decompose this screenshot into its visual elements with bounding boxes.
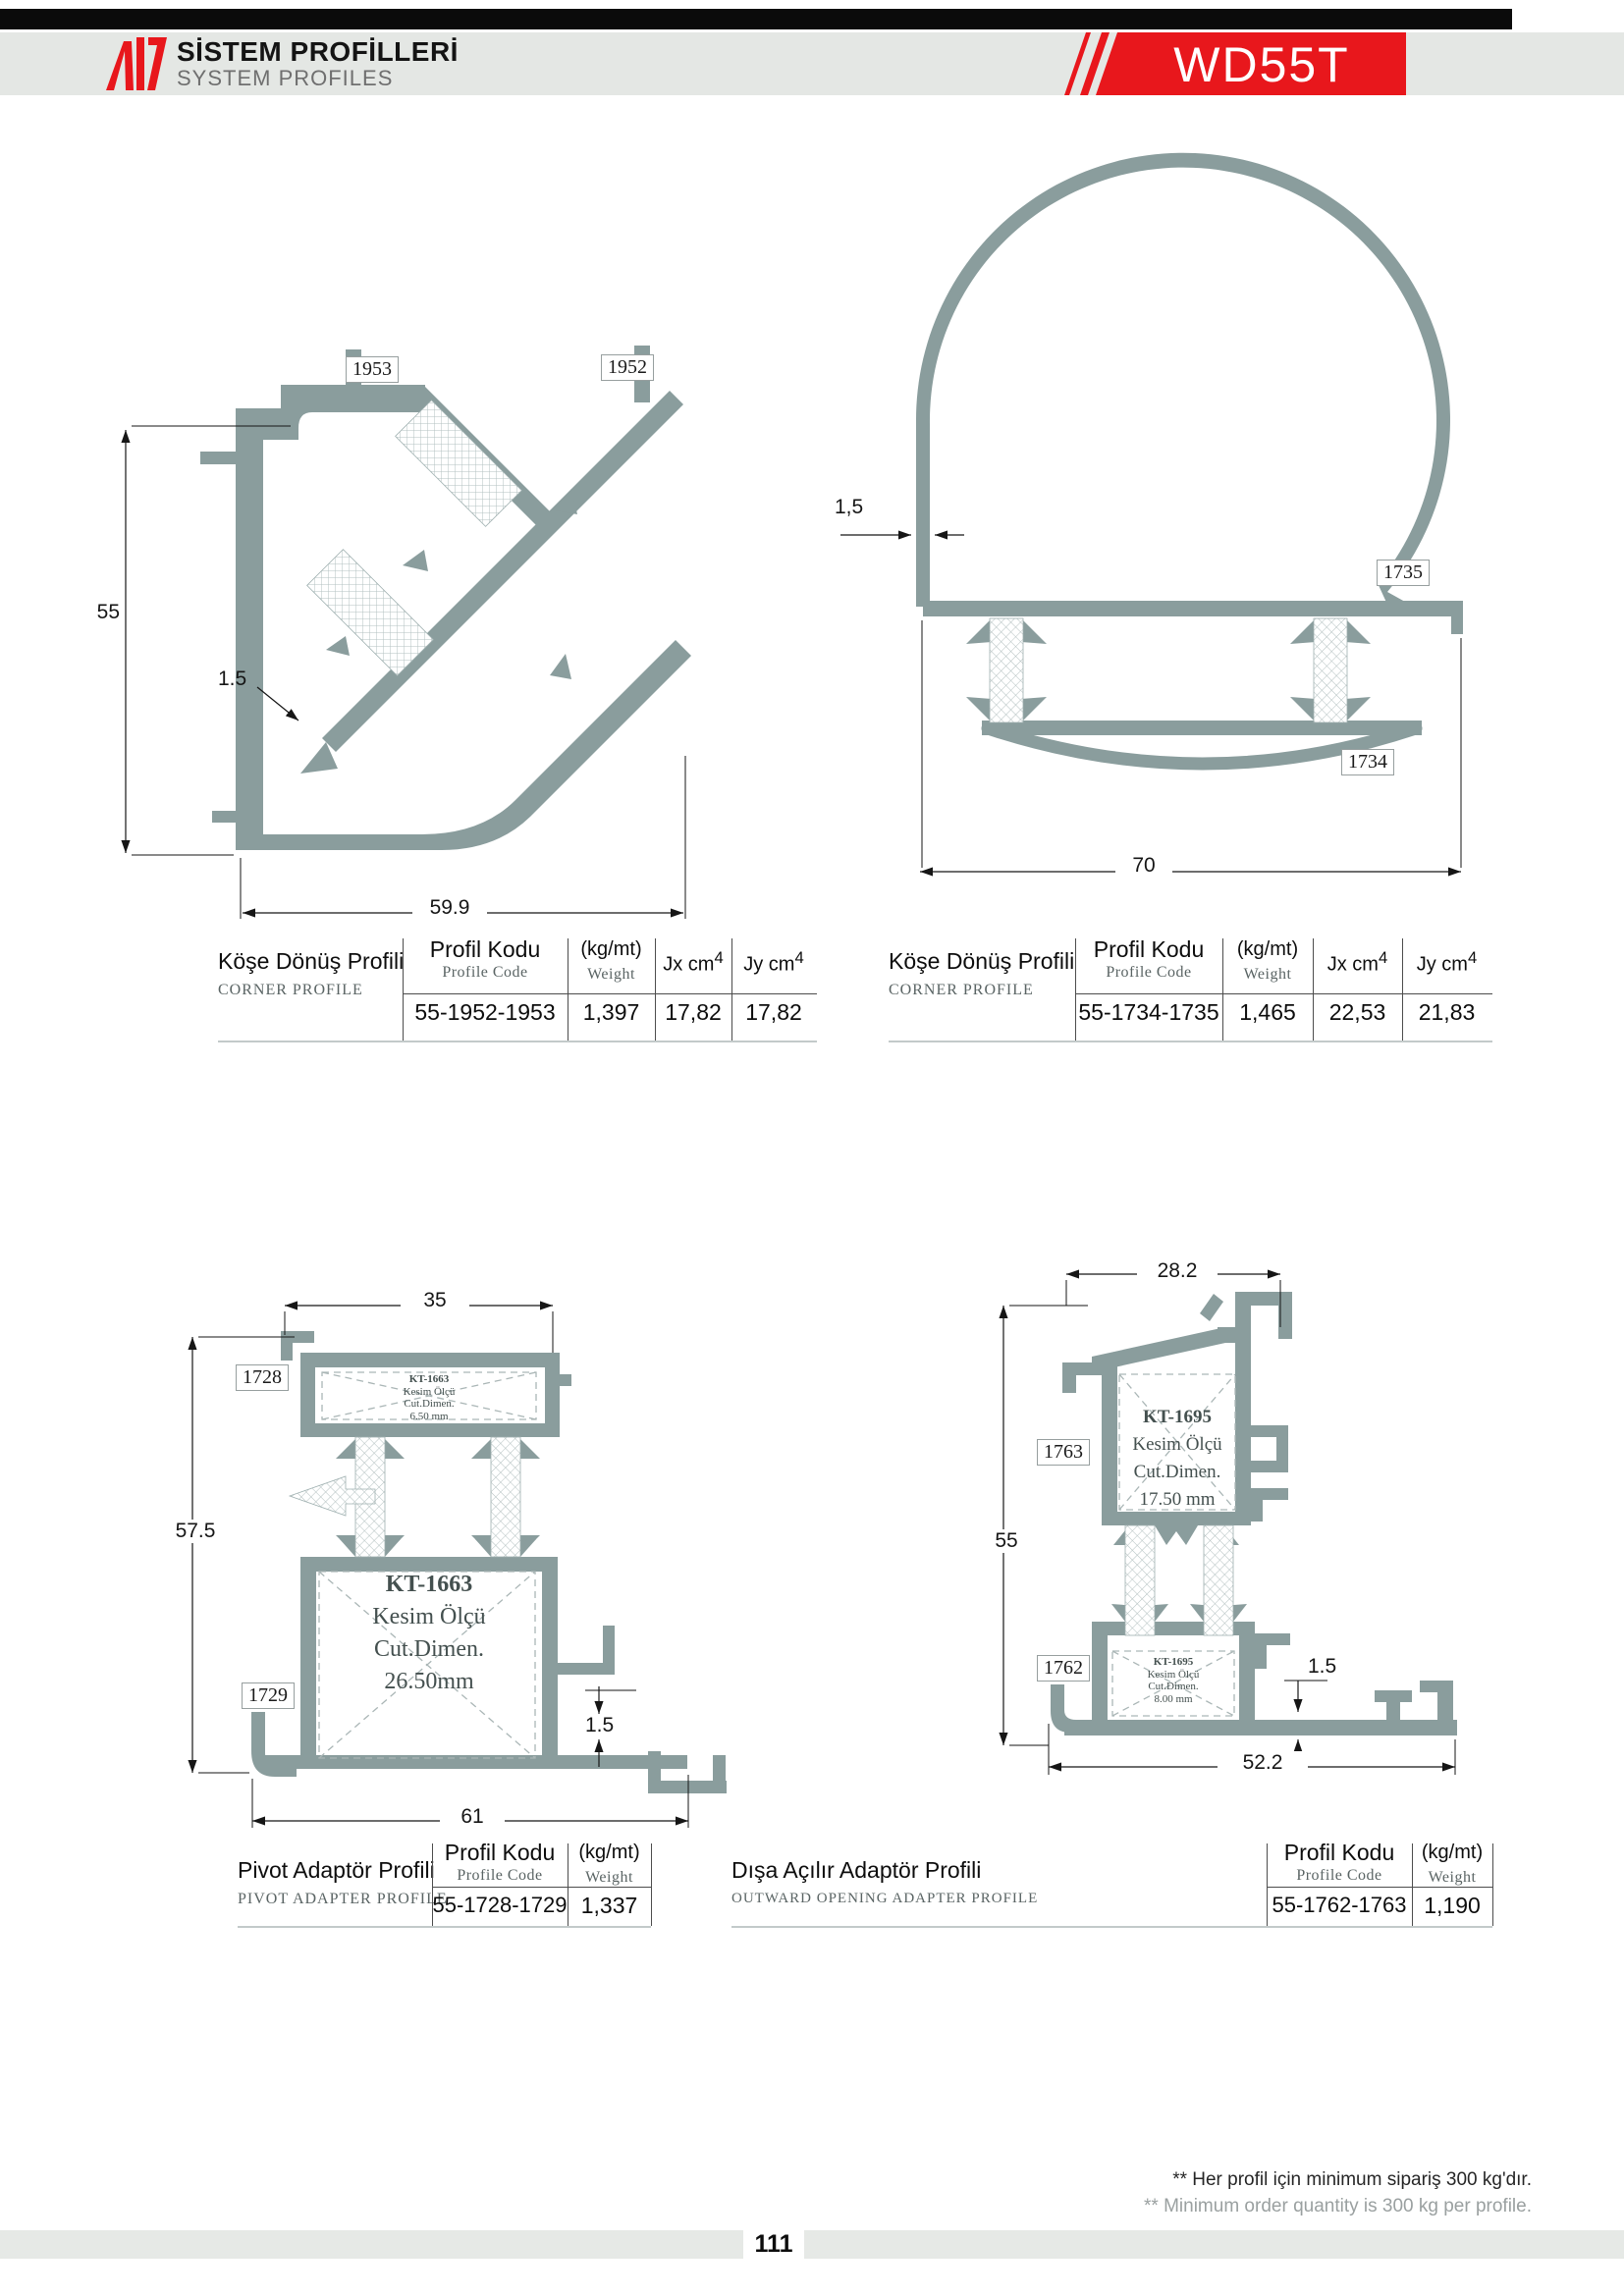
table2-subtitle: CORNER PROFILE <box>889 982 1034 999</box>
table1-weight: 1,397 <box>568 999 655 1026</box>
th-jx: Jx cm4 <box>655 948 731 977</box>
table1-subtitle: CORNER PROFILE <box>218 982 363 999</box>
table2-jy: 21,83 <box>1402 999 1491 1026</box>
part-label-1953: 1953 <box>346 356 399 383</box>
dim-top-35: 35 <box>401 1289 469 1312</box>
cut-note-big-kt1663: KT-1663 Kesim Ölçü Cut.Dimen. 26.50mm <box>322 1569 536 1698</box>
th-code-en: Profile Code <box>432 1867 568 1885</box>
table3-code: 55-1728-1729 <box>432 1893 568 1918</box>
th-weight-tr: (kg/mt) <box>568 1842 651 1864</box>
th-weight-en: Weight <box>568 966 655 984</box>
th-jy: Jy cm4 <box>731 948 816 977</box>
table2-code: 55-1734-1735 <box>1075 999 1222 1026</box>
footer-band <box>0 2230 1624 2259</box>
th-code-en: Profile Code <box>403 964 568 982</box>
th-code-tr: Profil Kodu <box>1075 936 1222 963</box>
brand-title: SİSTEM PROFİLLERİ <box>177 36 459 68</box>
th-code-en: Profile Code <box>1267 1867 1412 1885</box>
dim-top-28-2: 28.2 <box>1137 1259 1218 1283</box>
brand-logo-icon <box>104 35 167 92</box>
footer-note-en: ** Minimum order quantity is 300 kg per … <box>884 2196 1532 2217</box>
part-label-1763: 1763 <box>1037 1439 1090 1466</box>
th-weight-tr: (kg/mt) <box>568 938 655 961</box>
dim-width-59-9: 59.9 <box>412 896 487 920</box>
table3-subtitle: PIVOT ADAPTER PROFILE <box>238 1891 448 1908</box>
th-weight-en: Weight <box>1412 1869 1492 1887</box>
footer-note-tr: ** Her profil için minimum sipariş 300 k… <box>884 2169 1532 2191</box>
th-weight-tr: (kg/mt) <box>1412 1842 1492 1864</box>
page-number: 111 <box>743 2230 804 2259</box>
dim-wall-1-5d: 1.5 <box>1308 1655 1336 1679</box>
th-jx: Jx cm4 <box>1313 948 1402 977</box>
table4-title: Dışa Açılır Adaptör Profili <box>731 1857 981 1884</box>
dim-width-70: 70 <box>1115 854 1172 878</box>
th-code-en: Profile Code <box>1075 964 1222 982</box>
dim-wall-1-5b: 1,5 <box>835 496 863 519</box>
dim-wall-1-5: 1.5 <box>218 667 246 691</box>
th-code-tr: Profil Kodu <box>1267 1840 1412 1866</box>
th-weight-en: Weight <box>1222 966 1313 984</box>
th-code-tr: Profil Kodu <box>403 936 568 963</box>
table2-weight: 1,465 <box>1222 999 1313 1026</box>
part-label-1952: 1952 <box>601 354 654 381</box>
cut-note-small-kt1663: KT-1663 Kesim Ölçü Cut.Dimen. 6.50 mm <box>324 1373 534 1422</box>
table1-title: Köşe Dönüş Profili <box>218 948 404 975</box>
cut-note-big-kt1695: KT-1695 Kesim Ölçü Cut.Dimen. 17.50 mm <box>1115 1404 1239 1514</box>
table4-weight: 1,190 <box>1412 1893 1492 1919</box>
dim-width-61: 61 <box>440 1805 505 1829</box>
table2-jx: 22,53 <box>1313 999 1402 1026</box>
table2-title: Köşe Dönüş Profili <box>889 948 1074 975</box>
cut-note-small-kt1695: KT-1695 Kesim Ölçü Cut.Dimen. 8.00 mm <box>1113 1656 1233 1705</box>
dim-width-52-2: 52.2 <box>1218 1751 1308 1775</box>
top-rule <box>0 9 1512 29</box>
table4-code: 55-1762-1763 <box>1267 1893 1412 1918</box>
table3-title: Pivot Adaptör Profili <box>238 1857 435 1884</box>
table1-jy: 17,82 <box>731 999 816 1026</box>
th-weight-tr: (kg/mt) <box>1222 938 1313 961</box>
corner-profile-drawing-1 <box>118 324 727 942</box>
series-code: WD55T <box>1129 36 1394 93</box>
catalog-page: SİSTEM PROFİLLERİ SYSTEM PROFILES WD55T <box>0 0 1624 2296</box>
pivot-adapter-drawing <box>147 1276 746 1836</box>
table3-weight: 1,337 <box>568 1893 651 1919</box>
table1-code: 55-1952-1953 <box>403 999 568 1026</box>
brand-subtitle: SYSTEM PROFILES <box>177 66 393 91</box>
part-label-1728: 1728 <box>236 1364 289 1391</box>
dim-height-55: 55 <box>86 601 120 624</box>
th-weight-en: Weight <box>568 1869 651 1887</box>
th-code-tr: Profil Kodu <box>432 1840 568 1866</box>
dim-height-57-5: 57.5 <box>157 1520 234 1543</box>
corner-profile-drawing-2 <box>825 128 1512 893</box>
dim-height-55b: 55 <box>978 1529 1035 1553</box>
part-label-1729: 1729 <box>242 1682 295 1709</box>
th-jy: Jy cm4 <box>1402 948 1491 977</box>
table1-jx: 17,82 <box>655 999 731 1026</box>
dim-wall-1-5c: 1.5 <box>585 1714 614 1737</box>
part-label-1735: 1735 <box>1377 560 1430 586</box>
outward-adapter-drawing <box>972 1247 1512 1796</box>
part-label-1734: 1734 <box>1341 749 1394 775</box>
part-label-1762: 1762 <box>1037 1655 1090 1682</box>
table4-subtitle: OUTWARD OPENING ADAPTER PROFILE <box>731 1891 1038 1907</box>
